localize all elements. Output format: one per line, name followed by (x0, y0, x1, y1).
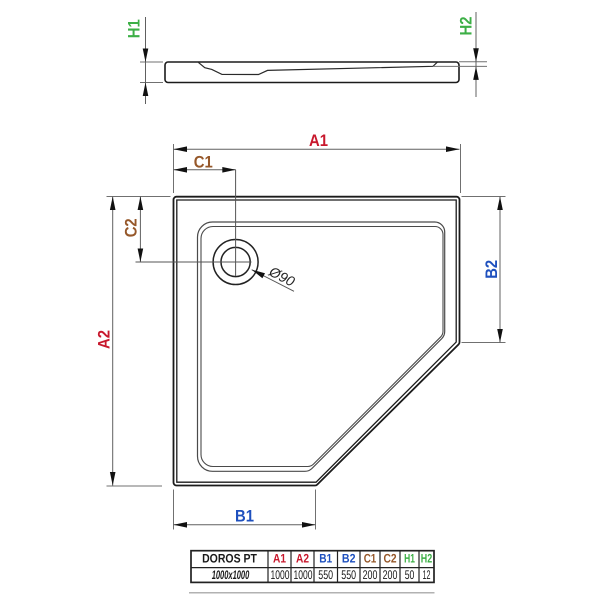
svg-text:C1: C1 (364, 551, 377, 565)
svg-text:B2: B2 (482, 260, 501, 279)
svg-text:H2: H2 (421, 551, 432, 565)
svg-text:550: 550 (318, 568, 333, 582)
svg-text:B1: B1 (235, 506, 254, 525)
svg-text:1000x1000: 1000x1000 (212, 568, 250, 582)
svg-text:550: 550 (341, 568, 356, 582)
svg-text:C2: C2 (383, 551, 396, 565)
svg-text:A2: A2 (95, 330, 114, 349)
svg-text:B1: B1 (319, 551, 332, 565)
svg-text:DOROS PT: DOROS PT (202, 551, 257, 565)
svg-text:200: 200 (363, 568, 378, 582)
svg-text:200: 200 (383, 568, 398, 582)
svg-text:C2: C2 (122, 218, 141, 237)
svg-text:B2: B2 (342, 551, 356, 565)
svg-text:A1: A1 (309, 131, 328, 150)
svg-text:1000: 1000 (271, 568, 290, 582)
svg-text:12: 12 (423, 568, 431, 582)
svg-text:H1: H1 (125, 19, 144, 38)
svg-text:C1: C1 (194, 153, 213, 172)
svg-text:50: 50 (405, 568, 415, 582)
svg-text:H2: H2 (457, 17, 476, 36)
svg-text:A1: A1 (273, 551, 286, 565)
svg-text:A2: A2 (296, 551, 309, 565)
svg-text:H1: H1 (404, 551, 415, 565)
svg-text:1000: 1000 (294, 568, 313, 582)
